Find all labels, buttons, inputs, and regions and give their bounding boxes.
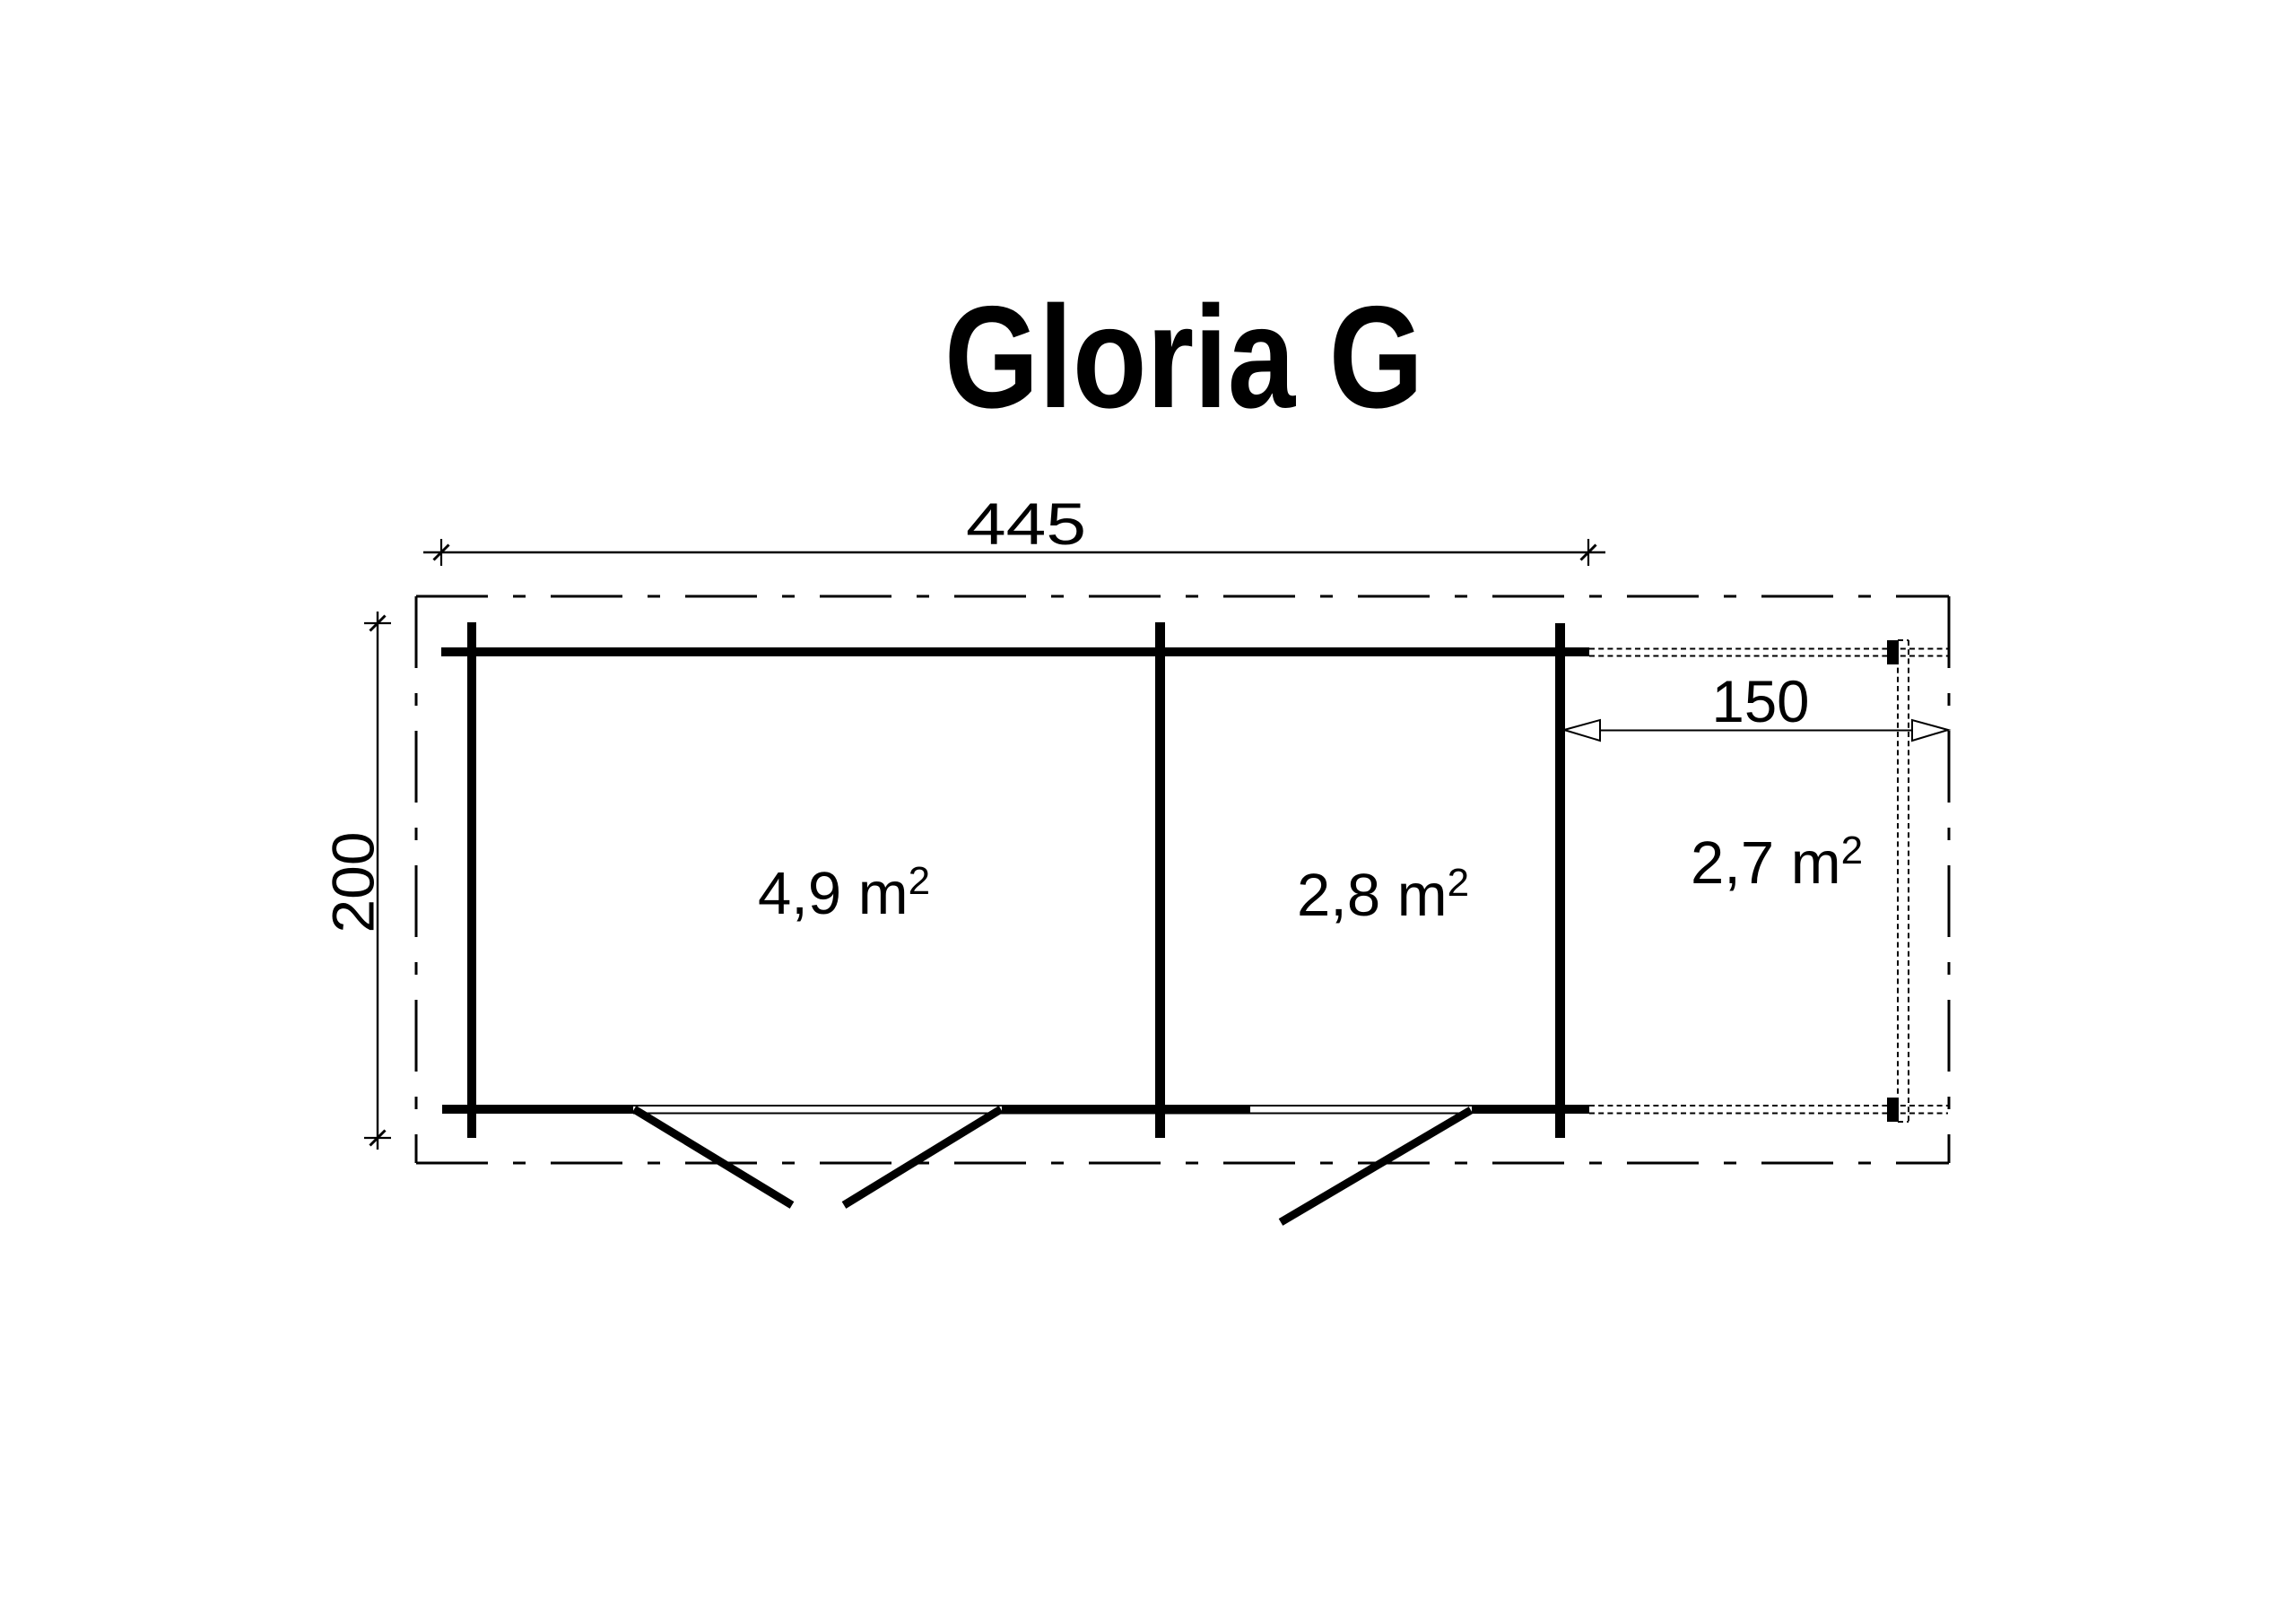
svg-text:445: 445 [966, 490, 1086, 557]
svg-text:4,9 m2: 4,9 m2 [758, 859, 930, 927]
svg-text:Gloria G: Gloria G [944, 276, 1423, 438]
svg-text:2,7 m2: 2,7 m2 [1691, 829, 1863, 897]
svg-text:2,8 m2: 2,8 m2 [1297, 861, 1469, 929]
svg-text:150: 150 [1712, 668, 1810, 734]
svg-text:200: 200 [320, 832, 387, 933]
